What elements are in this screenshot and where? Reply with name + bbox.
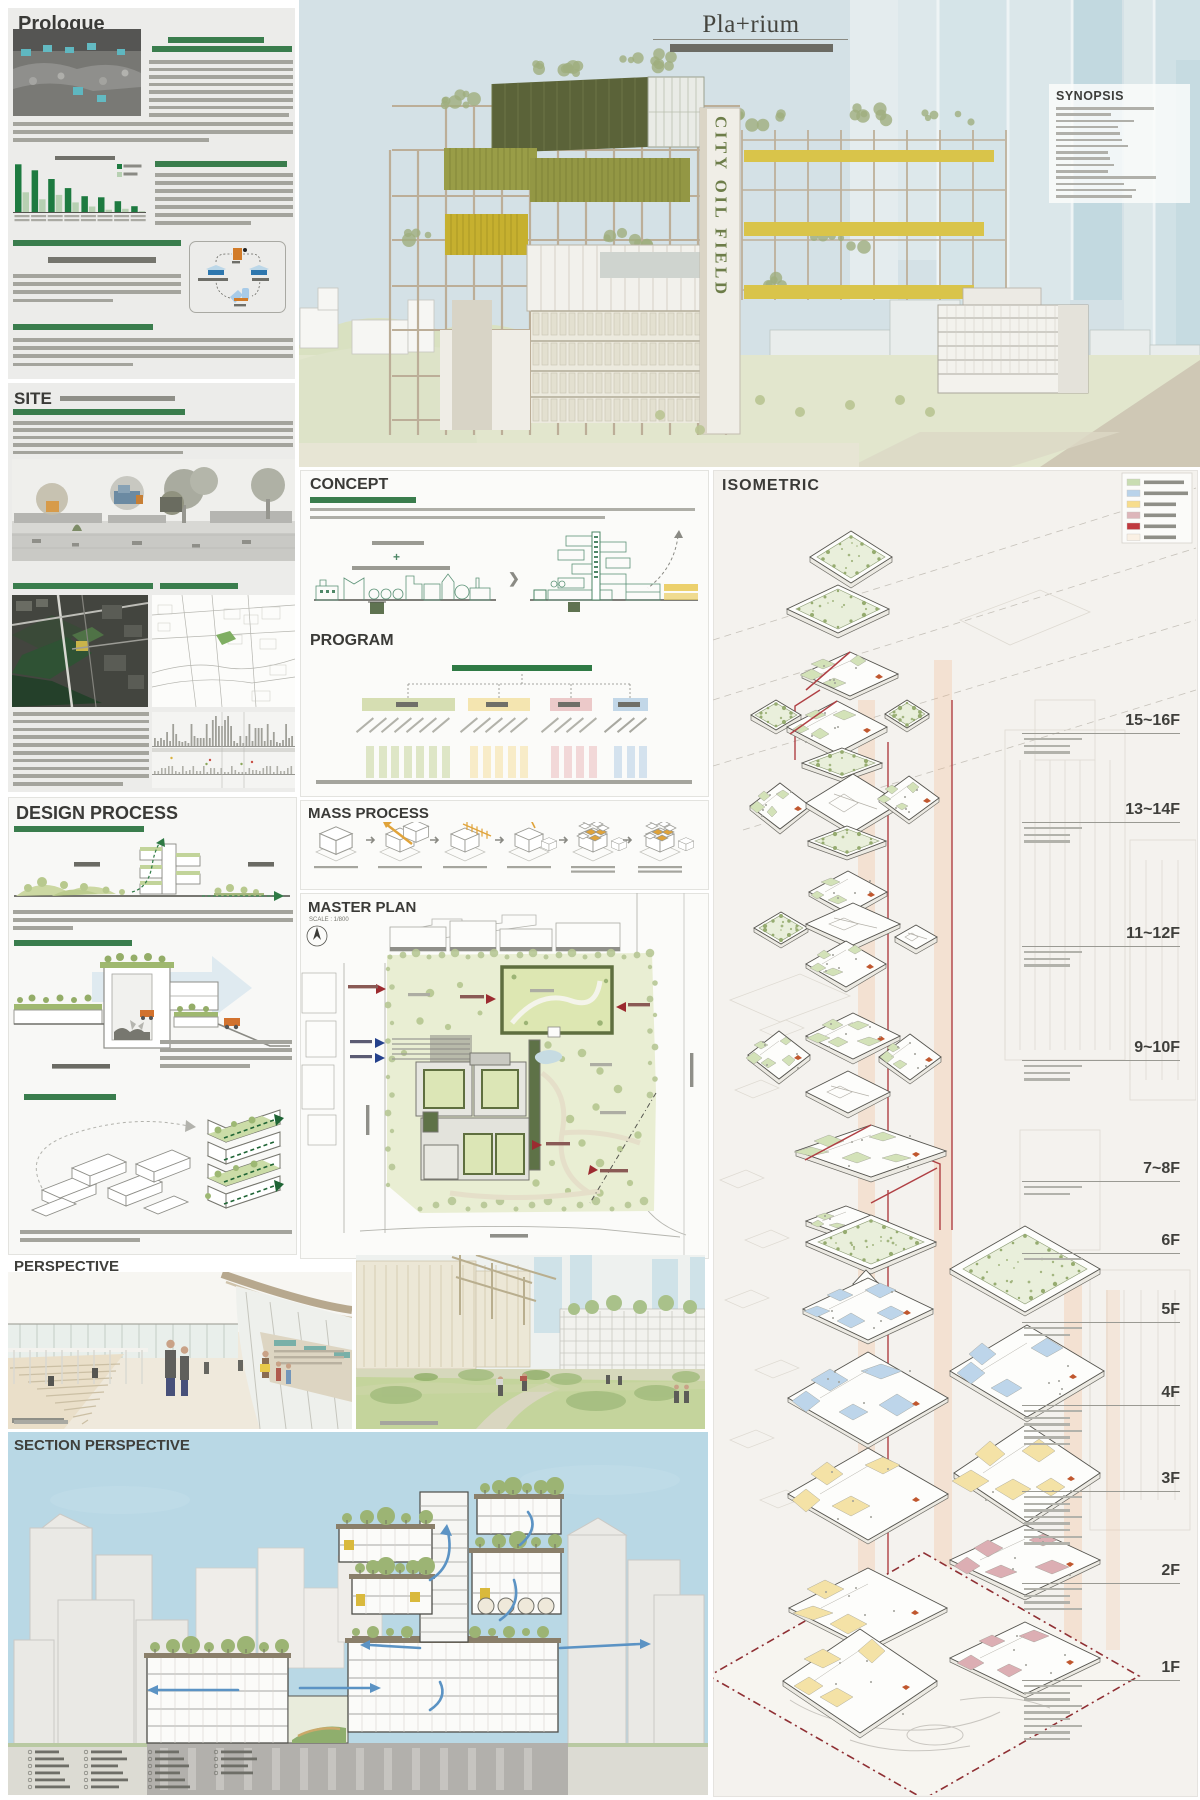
svg-text:CITY OIL FIELD: CITY OIL FIELD <box>712 116 731 298</box>
